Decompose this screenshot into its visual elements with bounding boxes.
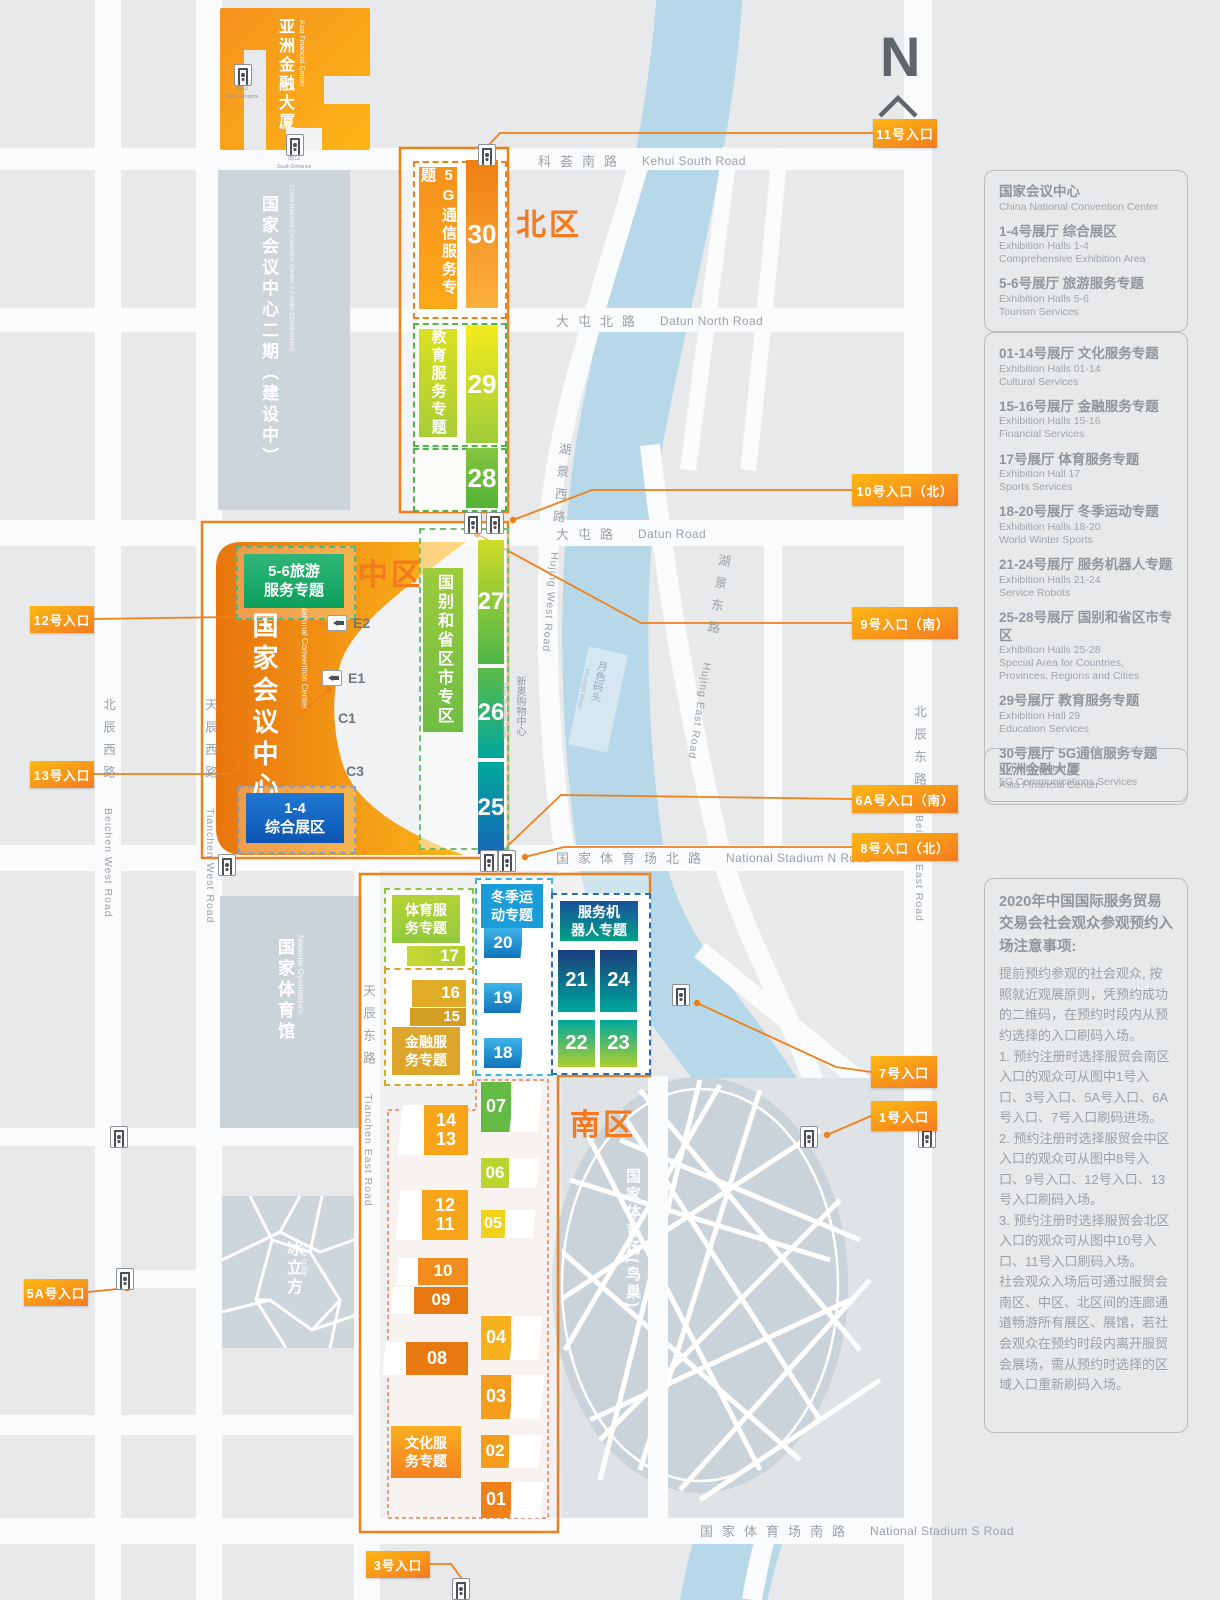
hall-03: 03 (481, 1375, 511, 1419)
legend-panel-halls: 01-14号展厅 文化服务专题 Exhibition Halls 01-14 C… (984, 332, 1188, 802)
hall-20: 20 (484, 928, 522, 958)
road-beichen-east-en: Beichen East Road (913, 815, 925, 922)
legend-item-zh: 18-20号展厅 冬季运动专题 (999, 503, 1173, 521)
road-label-kehui: 科荟南路 Kehui South Road (538, 151, 746, 170)
legend-afc-zh: 亚洲金融大厦 (999, 761, 1173, 779)
edu-area-label: 教育服务专题 (419, 329, 457, 437)
sports-area-label: 体育服 务专题 (392, 895, 460, 943)
entrance-badge-11: 11号入口 (873, 119, 937, 148)
door-icon-entrance-5a (116, 1268, 134, 1290)
legend-item: 5-6号展厅 旅游服务专题 Exhibition Halls 5-6 Touri… (999, 275, 1173, 319)
road-tianchen-west-zh: 天辰西路 (203, 698, 217, 788)
hall-01: 01 (481, 1482, 511, 1518)
door-icon-nsn-right (498, 850, 516, 872)
tourism-area-label: 5-6旅游 服务专题 (244, 554, 344, 608)
legend-panel-afc: 亚洲金融大厦 Asia Financial Center (984, 748, 1188, 805)
legend-item-en2: Service Robots (999, 587, 1173, 600)
door-icon-entrance-1 (800, 1126, 818, 1148)
entrance-badge-1: 1号入口 (871, 1101, 937, 1131)
hall-27: 27 (478, 540, 504, 664)
entrance-badge-3: 3号入口 (366, 1551, 430, 1578)
entrance-badge-7: 7号入口 (871, 1056, 937, 1088)
legend-item-en2: World Winter Sports (999, 534, 1173, 547)
legend-item-en1: Exhibition Halls 15-16 (999, 415, 1173, 428)
legend-item-en1: Exhibition Halls 18-20 (999, 521, 1173, 534)
hall-21: 21 (558, 950, 595, 1012)
notice-paragraph: 社会观众入场后可通过服贸会南区、中区、北区间的连廊通道畅游所有展区、展馆，若社会… (999, 1272, 1173, 1395)
door-icon-entrance-7 (672, 984, 690, 1006)
legend-item-en2: Sports Services (999, 481, 1173, 494)
legend-item-en1: Exhibition Halls 21-24 (999, 574, 1173, 587)
comprehensive-area-label: 1-4 综合展区 (246, 793, 344, 843)
hall-07: 07 (481, 1082, 511, 1132)
road-label-tianchen-east: 天辰东路 Tianchen East Road (359, 984, 378, 1284)
winter-area-label: 冬季运 动专题 (481, 884, 543, 928)
road-label-datun: 大屯路 Datun Road (556, 524, 706, 543)
hall-06: 06 (481, 1158, 509, 1188)
gate-e1-label: E1 (348, 670, 365, 686)
road-label-national-stadium-south: 国家体育场南路 National Stadium S Road (700, 1521, 1014, 1540)
country-area-label: 国别和省区市专区 (423, 568, 463, 732)
legend-item-zh: 17号展厅 体育服务专题 (999, 451, 1173, 469)
xinao-label-zh: 新奥购物中心 (512, 676, 527, 756)
gate-c1-label: C1 (338, 710, 356, 726)
hall-17: 17 (407, 946, 465, 966)
road-kehui-en: Kehui South Road (642, 154, 746, 168)
venue-map: 国家会议中心二期（建设中） China National Convention … (0, 0, 1220, 1600)
hall-wedge (510, 1375, 545, 1419)
road-label-datun-north: 大屯北路 Datun North Road (556, 311, 763, 330)
door-icon-cncc-south (218, 854, 236, 876)
legend-item-zh: 29号展厅 教育服务专题 (999, 692, 1173, 710)
gate-e1-icon (322, 670, 342, 686)
legend-item: 21-24号展厅 服务机器人专题 Exhibition Halls 21-24 … (999, 556, 1173, 600)
hall-23: 23 (600, 1020, 637, 1067)
hall-14-13: 14 13 (424, 1105, 468, 1155)
legend-item: 15-16号展厅 金融服务专题 Exhibition Halls 15-16 F… (999, 398, 1173, 442)
legend-item-zh: 21-24号展厅 服务机器人专题 (999, 556, 1173, 574)
north-zone-label: 北区 (516, 200, 582, 244)
legend-item-en1: Exhibition Hall 29 (999, 710, 1173, 723)
legend-item-en1: Exhibition Hall 17 (999, 468, 1173, 481)
hall-08: 08 (406, 1342, 468, 1375)
door-icon-beichen-west (110, 1126, 128, 1148)
hall-24: 24 (600, 950, 637, 1012)
entrance-badge-13: 13号入口 (30, 761, 94, 788)
road-beichen-west-zh: 北辰西路 (101, 698, 115, 788)
road-label-beichen-east: 北辰东路 Beichen East Road (910, 705, 929, 1105)
hall-wedge (509, 1082, 542, 1132)
legend-item: 29号展厅 教育服务专题 Exhibition Hall 29 Educatio… (999, 692, 1173, 736)
legend-item-zh: 5-6号展厅 旅游服务专题 (999, 275, 1173, 293)
hall-wedge (510, 1482, 544, 1518)
road-tianchen-east-en: Tianchen East Road (362, 1094, 374, 1207)
legend-item: 18-20号展厅 冬季运动专题 Exhibition Halls 18-20 W… (999, 503, 1173, 547)
notice-paragraph: 1. 预约注册时选择服贸会南区入口的观众可从图中1号入口、3号入口、5A号入口、… (999, 1047, 1173, 1129)
road-nsn-en: National Stadium N Road (726, 851, 871, 865)
hall-wedge (508, 1158, 539, 1188)
legend-afc-en: Asia Financial Center (999, 779, 1173, 792)
legend-item-zh: 1-4号展厅 综合展区 (999, 223, 1173, 241)
gate-c3-label: C3 (346, 763, 364, 779)
legend-cncc-title-en: China National Convention Center (999, 201, 1173, 214)
legend-item-zh: 15-16号展厅 金融服务专题 (999, 398, 1173, 416)
hall-22: 22 (558, 1020, 595, 1067)
legend-item-en1: Exhibition Halls 1-4 (999, 240, 1173, 253)
hall-12-11: 12 11 (422, 1190, 468, 1240)
hall-10: 10 (418, 1258, 468, 1285)
road-datun-en: Datun Road (638, 527, 706, 541)
hall-19: 19 (484, 983, 522, 1013)
notice-title: 2020年中国国际服务贸易交易会社会观众参观预约入场注意事项: (999, 891, 1173, 958)
hall-05: 05 (481, 1210, 505, 1238)
legend-panel-cncc: 国家会议中心 China National Convention Center … (984, 170, 1188, 332)
notice-paragraph: 3. 预约注册时选择服贸会北区入口的观众可从图中10号入口、11号入口刷码入场。 (999, 1211, 1173, 1273)
door-icon-entrance-11 (478, 144, 496, 166)
legend-cncc-title-zh: 国家会议中心 (999, 183, 1173, 201)
entrance-badge-8: 8号入口（北） (852, 833, 958, 861)
entrance-badge-9: 9号入口（南） (852, 607, 958, 639)
road-kehui-zh: 科荟南路 (538, 151, 626, 170)
entrance-badge-6a: 6A号入口（南） (852, 785, 958, 813)
door-icon-nsn-left (480, 850, 498, 872)
gate-e2-label: E2 (353, 615, 370, 631)
legend-item-en2: Tourism Services (999, 306, 1173, 319)
notice-panel: 2020年中国国际服务贸易交易会社会观众参观预约入场注意事项: 提前预约参观的社… (984, 878, 1188, 1433)
road-beichen-east-zh: 北辰东路 (912, 705, 926, 795)
legend-item: 25-28号展厅 国别和省区市专区 Exhibition Halls 25-28… (999, 609, 1173, 683)
legend-item: 1-4号展厅 综合展区 Exhibition Halls 1-4 Compreh… (999, 223, 1173, 267)
stadium-label-en: National Stadium (Bird's Nest) (646, 1175, 655, 1415)
hall-02: 02 (481, 1435, 509, 1468)
road-label-tianchen-west: 天辰西路 Tianchen West Road (201, 698, 220, 1128)
legend-item: 01-14号展厅 文化服务专题 Exhibition Halls 01-14 C… (999, 345, 1173, 389)
hall-wedge (505, 1210, 536, 1238)
legend-item-en1: Exhibition Halls 01-14 (999, 363, 1173, 376)
door-icon-datun-left (464, 512, 482, 534)
entrance-badge-12: 12号入口 (30, 606, 94, 633)
hall-09: 09 (414, 1287, 468, 1314)
legend-item-zh: 25-28号展厅 国别和省区市专区 (999, 609, 1173, 644)
hall-wedge (520, 1038, 544, 1068)
road-nss-zh: 国家体育场南路 (700, 1521, 854, 1540)
xinao-label-en: Xinao Shopping Center (501, 682, 507, 752)
hall-25: 25 (478, 762, 504, 854)
hall-wedge (508, 1435, 541, 1468)
hall-15: 15 (410, 1008, 466, 1026)
road-datun-north-zh: 大屯北路 (556, 311, 644, 330)
road-nss-en: National Stadium S Road (870, 1524, 1014, 1538)
hall-29: 29 (466, 325, 498, 443)
compass-n: N (880, 24, 920, 89)
legend-item-en2: Comprehensive Exhibition Area (999, 253, 1173, 266)
road-label-national-stadium-north: 国家体育场北路 National Stadium N Road (556, 848, 871, 867)
entrance-badge-10: 10号入口（北） (852, 474, 958, 506)
hall-wedge (520, 983, 544, 1013)
legend-item-en2: Cultural Services (999, 376, 1173, 389)
notice-paragraph: 提前预约参观的社会观众, 按照就近观展原则，凭预约成功的二维码，在预约时段内从预… (999, 964, 1173, 1046)
road-label-beichen-west: 北辰西路 Beichen West Road (99, 698, 118, 1128)
culture-area-label: 文化服 务专题 (391, 1426, 461, 1478)
robots-area-label: 服务机 器人专题 (560, 901, 638, 941)
road-tianchen-west-en: Tianchen West Road (204, 808, 216, 923)
notice-paragraph: 2. 预约注册时选择服贸会中区入口的观众可从图中8号入口、9号入口、12号入口、… (999, 1129, 1173, 1211)
door-icon-datun-right (486, 512, 504, 534)
hall-wedge (510, 1316, 543, 1360)
finance-area-label: 金融服 务专题 (392, 1027, 460, 1075)
legend-item-zh: 01-14号展厅 文化服务专题 (999, 345, 1173, 363)
road-tianchen-east-zh: 天辰东路 (361, 984, 375, 1074)
door-icon-entrance-3 (452, 1578, 470, 1600)
hall-28: 28 (466, 448, 498, 508)
hall-wedge (520, 928, 544, 958)
gate-e2-icon (327, 615, 347, 631)
hall-30: 30 (466, 160, 498, 308)
hall-16: 16 (412, 980, 466, 1007)
hall-04: 04 (481, 1316, 511, 1360)
middle-zone-label: 中区 (358, 550, 424, 594)
stadium-label-zh: 国家体育场(鸟巢) (622, 1168, 643, 1403)
compass-chevron-icon (876, 92, 920, 120)
legend-item-en1: Exhibition Halls 5-6 (999, 293, 1173, 306)
icecube-label-en: Ice cube (300, 1246, 309, 1316)
road-beichen-west-en: Beichen West Road (102, 808, 114, 918)
legend-item-en2: Education Services (999, 723, 1173, 736)
entrance-badge-5a: 5A号入口 (24, 1279, 88, 1306)
legend-item-en1: Exhibition Halls 25-28 (999, 644, 1173, 657)
south-zone-label: 南区 (570, 1100, 636, 1144)
legend-item-en2: Special Area for Countries, Provinces, R… (999, 657, 1173, 683)
legend-item: 17号展厅 体育服务专题 Exhibition Hall 17 Sports S… (999, 451, 1173, 495)
g5-area-label: 5G通信服务专题 (419, 167, 457, 309)
hall-18: 18 (484, 1038, 522, 1068)
legend-item-en2: Financial Services (999, 428, 1173, 441)
road-datun-north-en: Datun North Road (660, 314, 763, 328)
